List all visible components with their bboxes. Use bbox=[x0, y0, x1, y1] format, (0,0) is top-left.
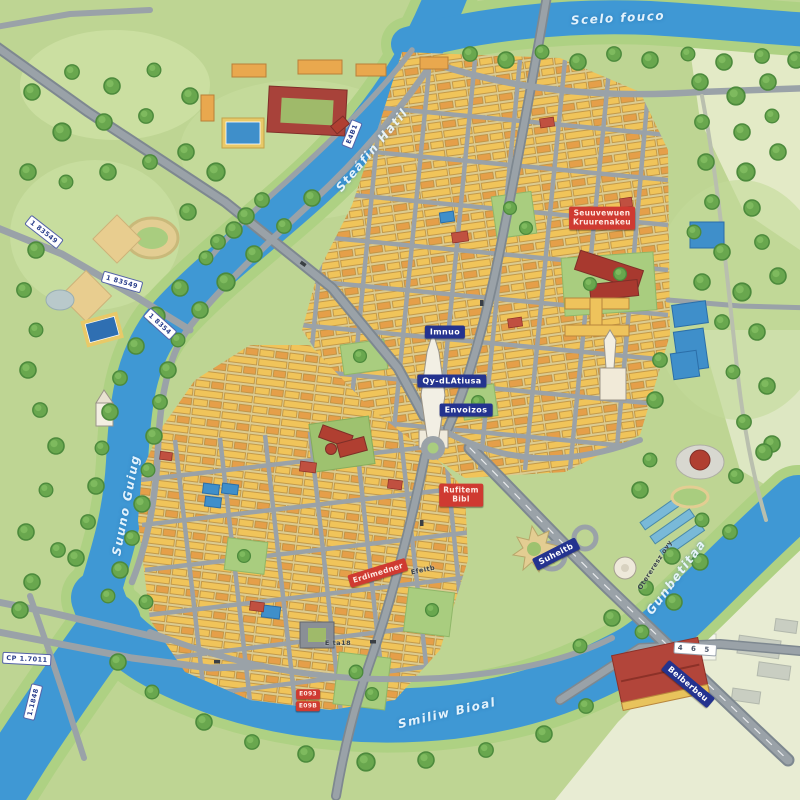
poi-red-mid-line1: Rufitem bbox=[443, 486, 479, 495]
poi-label-red-tag2: E09B bbox=[296, 701, 320, 711]
street-label-3: E ta18 bbox=[325, 639, 351, 647]
poi-label-blue-2: Qy-dLAtiusa bbox=[417, 375, 486, 388]
poi-label-red-big: Seuuvewuen Kruurenakeu bbox=[569, 207, 635, 230]
poi-red-big-line1: Seuuvewuen bbox=[573, 209, 631, 218]
poi-red-mid-line2: Bibl bbox=[443, 495, 479, 504]
poi-label-blue-3: Envoizos bbox=[440, 404, 493, 417]
landmark-observatory bbox=[614, 557, 636, 579]
landmark-castle bbox=[309, 416, 375, 472]
city-map[interactable]: Scelo fouco Steáfin Hatil Suuno Guiug Sm… bbox=[0, 0, 800, 800]
poi-label-red-mid: Rufitem Bibl bbox=[439, 484, 483, 507]
route-shield-5: CP 1.7011 bbox=[2, 652, 52, 667]
poi-label-red-tag1: E093 bbox=[296, 689, 320, 699]
poi-red-big-line2: Kruurenakeu bbox=[573, 218, 631, 227]
poi-label-blue-1: Imnuo bbox=[425, 326, 465, 339]
